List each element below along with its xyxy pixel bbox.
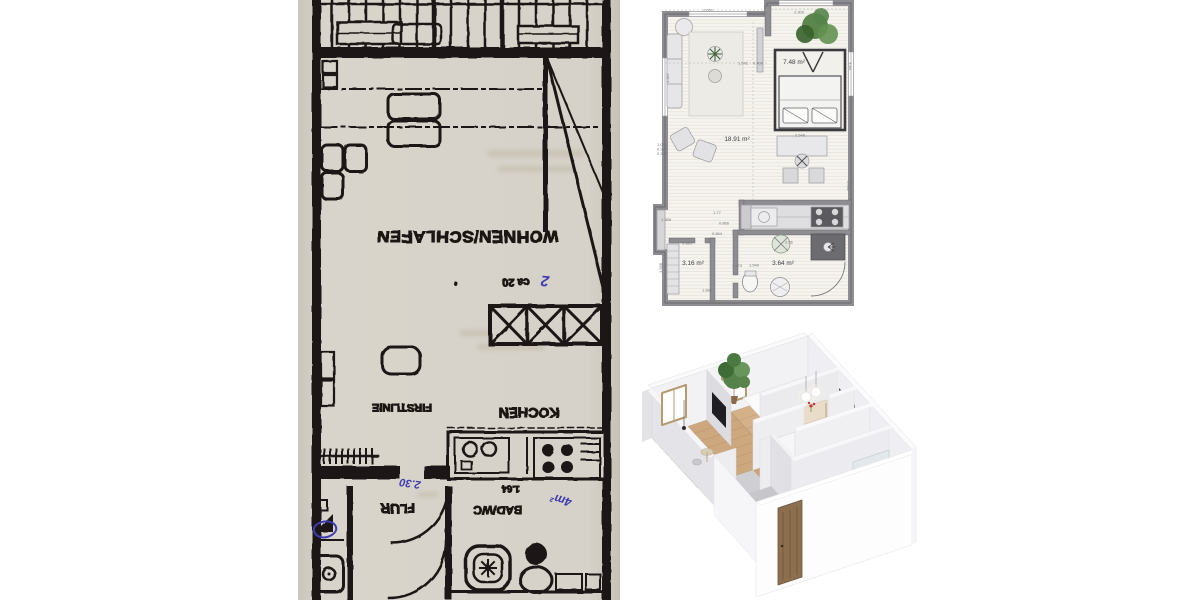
dim-label: 1.388 bbox=[661, 217, 672, 222]
bath-area-value: 3.64 m² bbox=[772, 260, 794, 267]
dim-label: 2.300 bbox=[794, 10, 805, 15]
modern-floorplan-svg: 18.91 m² 7.48 m² 3.16 m² 3.64 m² 2.652 2… bbox=[653, 0, 858, 306]
chair bbox=[783, 168, 798, 183]
bath-size-note: 1.64 bbox=[502, 484, 520, 494]
modern-floorplan-2d: 18.91 m² 7.48 m² 3.16 m² 3.64 m² 2.652 2… bbox=[653, 0, 858, 306]
sink bbox=[751, 208, 777, 226]
partition-wall bbox=[347, 486, 353, 600]
desk bbox=[777, 136, 827, 156]
dim-label: 0.864 bbox=[712, 231, 723, 236]
scanned-floorplan-photocopy: WOHNEN/SCHLAFEN ca 20 KOCHEN FIRSTLINIE … bbox=[298, 0, 620, 600]
interior-wall bbox=[424, 466, 450, 479]
scan-paper bbox=[298, 0, 620, 600]
dim-label: 0.866 bbox=[719, 221, 730, 226]
chair bbox=[809, 168, 824, 183]
door-handle bbox=[781, 545, 784, 548]
kitchen-label: KOCHEN bbox=[499, 405, 560, 421]
dim-label: 2.652 bbox=[703, 8, 714, 13]
hall-label: FLUR bbox=[380, 501, 415, 516]
dim-label: 0.339 bbox=[657, 151, 668, 156]
dim-label: 2.548 bbox=[795, 133, 806, 138]
interior-wall bbox=[314, 466, 400, 479]
dim-label: 1.457 bbox=[665, 72, 670, 83]
living-area-note: ca 20 bbox=[502, 276, 530, 288]
niche-appliance bbox=[657, 210, 665, 250]
dim-label: 2.511 bbox=[846, 181, 851, 191]
hall-wall bbox=[760, 436, 771, 490]
dim-label: 2.56 bbox=[785, 240, 794, 245]
right-outer-wall bbox=[602, 0, 611, 600]
ridge-line-label: FIRSTLINIE bbox=[372, 401, 432, 413]
dim-label: 1.77 bbox=[713, 210, 722, 215]
living-area-value: 18.91 m² bbox=[724, 136, 749, 143]
bath-label: BAD/WC bbox=[473, 503, 523, 517]
dim-label: 1.598 bbox=[658, 262, 663, 273]
scanned-floorplan-svg: WOHNEN/SCHLAFEN ca 20 KOCHEN FIRSTLINIE … bbox=[298, 0, 620, 600]
balcony-fragment bbox=[642, 388, 652, 442]
kitchen-counter bbox=[448, 428, 605, 479]
sofa bbox=[667, 34, 682, 108]
pendant-bulb bbox=[682, 426, 686, 430]
plant-on-table bbox=[708, 47, 722, 61]
right-wall-outer bbox=[912, 447, 917, 545]
shaft-x-hatch bbox=[490, 306, 602, 344]
wardrobe bbox=[667, 244, 679, 294]
dim-label: 1.542 bbox=[738, 61, 749, 66]
dim-label: 3.40 bbox=[848, 62, 853, 71]
wire-chair bbox=[693, 459, 702, 465]
render-3d-building bbox=[642, 333, 917, 597]
isometric-3d-render bbox=[640, 300, 940, 600]
dim-label: 0.883 bbox=[682, 241, 693, 246]
dim-label: 1.473 bbox=[732, 263, 743, 268]
dim-label: 1.549 bbox=[749, 263, 760, 268]
entrance-door bbox=[778, 500, 802, 585]
stove bbox=[811, 207, 843, 227]
living-room-label: WOHNEN/SCHLAFEN bbox=[377, 227, 559, 246]
bedroom-area-value: 7.48 m² bbox=[783, 59, 805, 66]
top-wall bbox=[312, 47, 611, 58]
render-3d-svg bbox=[640, 300, 940, 600]
dim-label: 1.890 bbox=[702, 288, 713, 293]
hall-area-value: 3.16 m² bbox=[682, 260, 704, 267]
window bbox=[662, 385, 686, 425]
dim-label: 0.400 bbox=[753, 61, 764, 66]
